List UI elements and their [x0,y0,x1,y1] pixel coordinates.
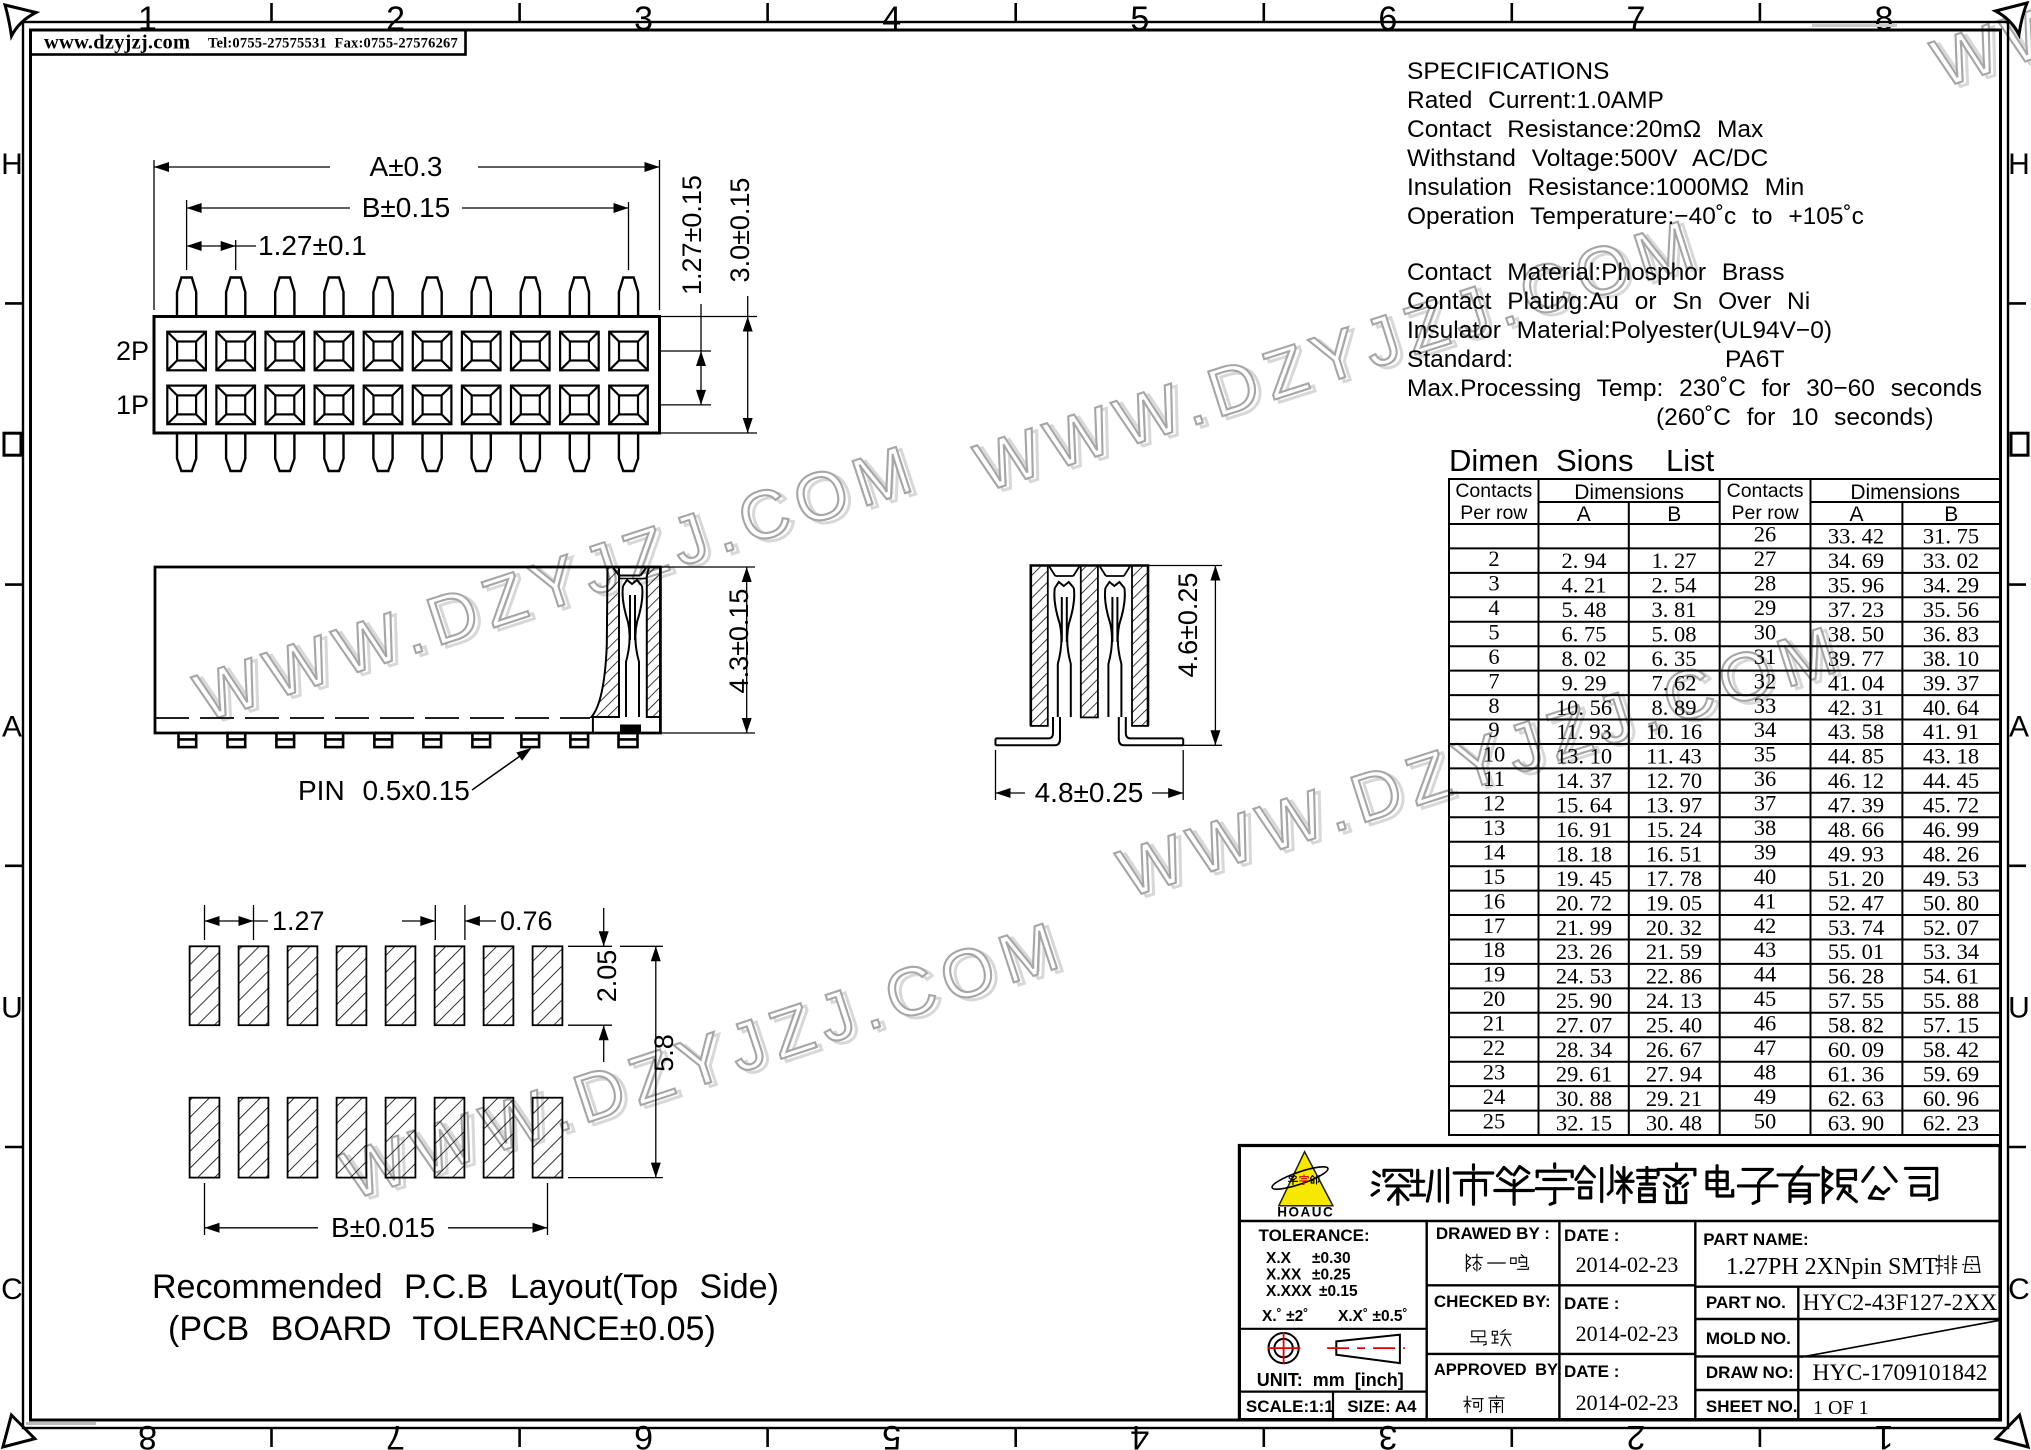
svg-text:10. 16: 10. 16 [1646,719,1702,744]
svg-text:1 OF 1: 1 OF 1 [1813,1397,1869,1419]
svg-text:11. 93: 11. 93 [1556,719,1611,744]
svg-text:Rated Current:1.0AMP: Rated Current:1.0AMP [1407,87,1664,114]
svg-text:5. 48: 5. 48 [1562,597,1607,622]
svg-text:5: 5 [1130,0,1149,38]
svg-text:17. 78: 17. 78 [1646,866,1702,891]
svg-text:35: 35 [1754,742,1777,767]
svg-text:7. 62: 7. 62 [1652,670,1697,695]
svg-text:DATE :: DATE : [1564,1294,1619,1313]
svg-text:MOLD NO.: MOLD NO. [1706,1329,1791,1348]
svg-text:24: 24 [1483,1084,1506,1109]
svg-text:37: 37 [1754,791,1777,816]
svg-text:13: 13 [1483,815,1506,840]
svg-text:1P: 1P [116,390,149,420]
svg-text:21. 99: 21. 99 [1556,915,1612,940]
svg-text:12. 70: 12. 70 [1646,768,1702,793]
svg-text:11. 43: 11. 43 [1646,744,1701,769]
svg-text:44: 44 [1754,962,1777,987]
svg-text:Recommended P.C.B Layout(Top S: Recommended P.C.B Layout(Top Side) [152,1268,779,1306]
svg-text:CHECKED BY:: CHECKED BY: [1434,1292,1551,1311]
svg-text:1.27: 1.27 [272,906,325,936]
svg-text:24. 53: 24. 53 [1556,964,1612,989]
svg-text:4: 4 [1130,1418,1149,1450]
svg-text:30. 88: 30. 88 [1556,1086,1612,1111]
svg-text:39. 77: 39. 77 [1828,646,1884,671]
svg-text:38. 10: 38. 10 [1923,646,1979,671]
svg-text:33. 42: 33. 42 [1828,524,1884,549]
svg-text:1: 1 [1875,1418,1894,1450]
svg-text:SHEET NO.: SHEET NO. [1706,1397,1798,1416]
svg-text:C: C [1,1273,23,1306]
svg-text:43: 43 [1754,937,1777,962]
svg-text:11: 11 [1483,766,1505,791]
svg-text:(260˚C for 10 seconds): (260˚C for 10 seconds) [1656,404,1934,431]
svg-text:27. 94: 27. 94 [1646,1061,1702,1086]
svg-text:Insulation Resistance:1000MΩ M: Insulation Resistance:1000MΩ Min [1407,174,1804,201]
svg-text:21: 21 [1483,1011,1506,1036]
svg-text:25. 90: 25. 90 [1556,988,1612,1013]
svg-text:16. 91: 16. 91 [1556,817,1612,842]
svg-text:19. 45: 19. 45 [1556,866,1612,891]
svg-text:26: 26 [1754,522,1777,547]
svg-text:B±0.015: B±0.015 [331,1212,435,1243]
svg-text:25: 25 [1483,1108,1506,1133]
svg-text:DRAW NO:: DRAW NO: [1706,1363,1794,1382]
svg-text:39: 39 [1754,839,1777,864]
svg-text:±0.30: ±0.30 [1312,1250,1351,1267]
svg-text:20. 72: 20. 72 [1556,890,1612,915]
svg-text:41. 04: 41. 04 [1828,670,1884,695]
svg-text:38: 38 [1754,815,1777,840]
svg-text:15: 15 [1483,864,1506,889]
svg-text:X.X: X.X [1266,1250,1292,1267]
svg-text:Max.Processing Temp: 230˚C for: Max.Processing Temp: 230˚C for 30−60 sec… [1407,375,1982,402]
svg-text:57. 55: 57. 55 [1828,988,1884,1013]
svg-text:31. 75: 31. 75 [1923,524,1979,549]
svg-text:5. 08: 5. 08 [1652,622,1697,647]
svg-text:X.X˚ ±0.5˚: X.X˚ ±0.5˚ [1338,1308,1408,1325]
svg-text:14: 14 [1483,839,1506,864]
svg-text:A±0.3: A±0.3 [370,151,443,182]
svg-text:56. 28: 56. 28 [1828,964,1884,989]
svg-text:20: 20 [1483,986,1506,1011]
svg-text:1.27PH 2XNpin SMT: 1.27PH 2XNpin SMT [1726,1254,1938,1280]
svg-text:40. 64: 40. 64 [1923,695,1979,720]
svg-text:45: 45 [1754,986,1777,1011]
svg-text:45. 72: 45. 72 [1923,793,1979,818]
svg-text:7: 7 [1626,0,1645,38]
svg-text:41. 91: 41. 91 [1923,719,1979,744]
svg-text:SIZE: A4: SIZE: A4 [1347,1397,1417,1416]
svg-text:3. 81: 3. 81 [1652,597,1697,622]
svg-text:X.XX: X.XX [1266,1267,1302,1284]
svg-text:51. 20: 51. 20 [1828,866,1884,891]
svg-text:6. 35: 6. 35 [1652,646,1697,671]
svg-text:29. 21: 29. 21 [1646,1086,1702,1111]
svg-text:7: 7 [1488,668,1499,693]
svg-text:2. 94: 2. 94 [1562,548,1607,573]
svg-text:2: 2 [1488,546,1499,571]
svg-text:8. 02: 8. 02 [1562,646,1607,671]
svg-text:32: 32 [1754,668,1777,693]
svg-text:30. 48: 30. 48 [1646,1110,1702,1135]
svg-text:54. 61: 54. 61 [1923,964,1979,989]
svg-text:29: 29 [1754,595,1777,620]
svg-text:23: 23 [1483,1059,1506,1084]
svg-text:SCALE:1:1: SCALE:1:1 [1246,1397,1334,1416]
svg-text:48. 66: 48. 66 [1828,817,1884,842]
svg-text:16: 16 [1483,888,1506,913]
svg-text:39. 37: 39. 37 [1923,670,1979,695]
svg-text:44. 85: 44. 85 [1828,744,1884,769]
svg-text:40: 40 [1754,864,1777,889]
svg-text:17: 17 [1483,913,1506,938]
svg-text:5.8: 5.8 [649,1034,679,1072]
svg-text:37. 23: 37. 23 [1828,597,1884,622]
svg-text:Sions: Sions [1556,443,1634,478]
svg-text:2. 54: 2. 54 [1652,573,1697,598]
svg-text:15. 64: 15. 64 [1556,793,1612,818]
svg-text:H: H [1,148,23,181]
svg-text:8: 8 [138,1418,157,1450]
svg-text:49. 53: 49. 53 [1923,866,1979,891]
svg-text:HYC-1709101842: HYC-1709101842 [1813,1360,1988,1386]
svg-text:26. 67: 26. 67 [1646,1037,1702,1062]
svg-text:49. 93: 49. 93 [1828,841,1884,866]
svg-text:30: 30 [1754,620,1777,645]
svg-text:48: 48 [1754,1059,1777,1084]
svg-text:(PCB BOARD TOLERANCE±0.05): (PCB BOARD TOLERANCE±0.05) [168,1310,716,1348]
svg-text:55. 01: 55. 01 [1828,939,1884,964]
svg-text:43. 18: 43. 18 [1923,744,1979,769]
svg-text:U: U [1,992,23,1025]
svg-text:22: 22 [1483,1035,1506,1060]
svg-text:4.8±0.25: 4.8±0.25 [1035,777,1144,808]
svg-text:9: 9 [1488,717,1499,742]
svg-text:U: U [2008,992,2030,1025]
svg-text:60. 96: 60. 96 [1923,1086,1979,1111]
svg-text:A: A [1849,503,1863,526]
svg-text:49: 49 [1754,1084,1777,1109]
svg-text:15. 24: 15. 24 [1646,817,1702,842]
svg-text:10. 56: 10. 56 [1556,695,1612,720]
svg-text:36: 36 [1754,766,1777,791]
svg-text:Insulator Material:Polyester(U: Insulator Material:Polyester(UL94V−0) [1407,317,1832,344]
svg-text:H: H [2008,148,2030,181]
svg-text:46. 12: 46. 12 [1828,768,1884,793]
svg-text:A: A [2009,710,2029,743]
svg-text:47. 39: 47. 39 [1828,793,1884,818]
svg-text:55. 88: 55. 88 [1923,988,1979,1013]
svg-text:6: 6 [1378,0,1397,38]
svg-text:PIN 0.5x0.15: PIN 0.5x0.15 [298,775,470,806]
svg-text:57. 15: 57. 15 [1923,1013,1979,1038]
svg-text:33. 02: 33. 02 [1923,548,1979,573]
svg-text:SPECIFICATIONS: SPECIFICATIONS [1407,58,1609,85]
svg-text:PA6T: PA6T [1725,346,1784,373]
svg-text:58. 82: 58. 82 [1828,1013,1884,1038]
svg-text:2: 2 [1626,1418,1645,1450]
svg-text:50: 50 [1754,1108,1777,1133]
svg-text:53. 34: 53. 34 [1923,939,1979,964]
svg-text:10: 10 [1483,742,1506,767]
svg-text:A: A [1577,503,1591,526]
svg-text:47: 47 [1754,1035,1777,1060]
svg-text:±0.25: ±0.25 [1312,1267,1351,1284]
svg-text:Contacts: Contacts [1727,480,1804,502]
svg-text:52. 07: 52. 07 [1923,915,1979,940]
svg-text:5: 5 [882,1418,901,1450]
svg-text:34. 29: 34. 29 [1923,573,1979,598]
svg-text:HOAUC: HOAUC [1277,1205,1334,1220]
svg-text:12: 12 [1483,791,1506,816]
svg-text:±0.15: ±0.15 [1319,1283,1358,1300]
svg-text:4: 4 [882,0,901,38]
svg-text:42: 42 [1754,913,1777,938]
svg-text:60. 09: 60. 09 [1828,1037,1884,1062]
svg-text:Tel:0755-27575531 Fax:0755-27: Tel:0755-27575531 Fax:0755-27576267 [208,36,458,52]
svg-text:3: 3 [634,0,653,38]
svg-text:28. 34: 28. 34 [1556,1037,1612,1062]
svg-text:0.76: 0.76 [500,906,553,936]
svg-text:2014-02-23: 2014-02-23 [1576,1321,1679,1346]
svg-text:4: 4 [1488,595,1499,620]
svg-text:List: List [1666,443,1715,478]
svg-text:UNIT: mm [inch]: UNIT: mm [inch] [1257,1370,1404,1390]
svg-text:61. 36: 61. 36 [1828,1061,1884,1086]
svg-text:4.3±0.15: 4.3±0.15 [724,589,754,694]
svg-text:B±0.15: B±0.15 [362,192,451,223]
svg-text:3: 3 [1378,1418,1397,1450]
svg-text:DATE :: DATE : [1564,1362,1619,1381]
svg-text:53. 74: 53. 74 [1828,915,1884,940]
svg-text:34. 69: 34. 69 [1828,548,1884,573]
svg-text:4.6±0.25: 4.6±0.25 [1173,573,1203,678]
svg-text:APPROVED BY:: APPROVED BY: [1434,1361,1562,1379]
svg-text:7: 7 [386,1418,405,1450]
svg-text:33: 33 [1754,693,1777,718]
svg-text:31: 31 [1754,644,1777,669]
svg-text:Dimensions: Dimensions [1574,481,1684,504]
svg-text:42. 31: 42. 31 [1828,695,1884,720]
svg-text:Operation Temperature:−40˚c to: Operation Temperature:−40˚c to +105˚c [1407,203,1864,230]
svg-text:44. 45: 44. 45 [1923,768,1979,793]
svg-text:2014-02-23: 2014-02-23 [1576,1390,1679,1415]
svg-text:www.dzyjzj.com: www.dzyjzj.com [44,32,190,54]
svg-text:14. 37: 14. 37 [1556,768,1612,793]
svg-text:2: 2 [386,0,405,38]
svg-text:62. 63: 62. 63 [1828,1086,1884,1111]
svg-text:41: 41 [1754,888,1777,913]
svg-text:Dimen: Dimen [1449,443,1539,478]
svg-text:PART NO.: PART NO. [1706,1293,1786,1312]
svg-text:21. 59: 21. 59 [1646,939,1702,964]
svg-text:2P: 2P [116,336,149,366]
svg-text:A: A [2,710,22,743]
svg-text:62. 23: 62. 23 [1923,1110,1979,1135]
svg-text:18. 18: 18. 18 [1556,841,1612,866]
svg-text:PART NAME:: PART NAME: [1703,1230,1808,1249]
svg-text:32. 15: 32. 15 [1556,1110,1612,1135]
svg-text:Dimensions: Dimensions [1850,481,1960,504]
svg-text:6: 6 [1488,644,1499,669]
svg-text:3: 3 [1488,571,1499,596]
svg-text:6: 6 [634,1418,653,1450]
svg-text:63. 90: 63. 90 [1828,1110,1884,1135]
svg-text:48. 26: 48. 26 [1923,841,1979,866]
svg-text:Contact Material:Phosphor Bras: Contact Material:Phosphor Brass [1407,259,1785,286]
svg-text:25. 40: 25. 40 [1646,1013,1702,1038]
svg-text:18: 18 [1483,937,1506,962]
svg-text:35. 56: 35. 56 [1923,597,1979,622]
svg-text:Contact Plating:Au or Sn Over: Contact Plating:Au or Sn Over Ni [1407,288,1810,315]
svg-text:HYC2-43F127-2XX: HYC2-43F127-2XX [1803,1290,1998,1316]
svg-text:8: 8 [1875,0,1894,38]
svg-text:DRAWED BY :: DRAWED BY : [1436,1224,1550,1243]
svg-text:34: 34 [1754,717,1777,742]
svg-text:8. 89: 8. 89 [1652,695,1697,720]
svg-text:52. 47: 52. 47 [1828,890,1884,915]
svg-text:29. 61: 29. 61 [1556,1061,1612,1086]
svg-text:TOLERANCE:: TOLERANCE: [1259,1226,1370,1245]
svg-text:19. 05: 19. 05 [1646,890,1702,915]
svg-text:Per row: Per row [1460,502,1528,524]
svg-text:DATE :: DATE : [1564,1226,1619,1245]
svg-text:46. 99: 46. 99 [1923,817,1979,842]
svg-text:1.27±0.15: 1.27±0.15 [677,175,707,295]
svg-text:X.˚ ±2˚: X.˚ ±2˚ [1262,1308,1308,1325]
svg-text:59. 69: 59. 69 [1923,1061,1979,1086]
svg-text:Per row: Per row [1732,502,1800,524]
svg-text:6. 75: 6. 75 [1562,622,1607,647]
svg-text:23. 26: 23. 26 [1556,939,1612,964]
svg-text:9. 29: 9. 29 [1562,670,1607,695]
svg-text:43. 58: 43. 58 [1828,719,1884,744]
svg-text:36. 83: 36. 83 [1923,622,1979,647]
svg-text:13. 10: 13. 10 [1556,744,1612,769]
svg-text:1. 27: 1. 27 [1652,548,1697,573]
svg-text:24. 13: 24. 13 [1646,988,1702,1013]
svg-text:Standard:: Standard: [1407,346,1513,373]
svg-text:2014-02-23: 2014-02-23 [1576,1252,1679,1277]
svg-text:C: C [2008,1273,2030,1306]
svg-text:50. 80: 50. 80 [1923,890,1979,915]
svg-text:22. 86: 22. 86 [1646,964,1702,989]
svg-text:Contacts: Contacts [1455,480,1532,502]
svg-text:35. 96: 35. 96 [1828,573,1884,598]
svg-text:B: B [1944,503,1958,526]
svg-text:27: 27 [1754,546,1777,571]
svg-text:20. 32: 20. 32 [1646,915,1702,940]
svg-text:27. 07: 27. 07 [1556,1013,1612,1038]
svg-text:5: 5 [1488,620,1499,645]
svg-text:Withstand Voltage:500V AC/DC: Withstand Voltage:500V AC/DC [1407,145,1768,172]
svg-text:19: 19 [1483,962,1506,987]
svg-text:2.05: 2.05 [592,950,622,1003]
svg-text:13. 97: 13. 97 [1646,793,1702,818]
svg-text:3.0±0.15: 3.0±0.15 [725,178,755,283]
svg-text:4. 21: 4. 21 [1562,573,1607,598]
svg-text:1.27±0.1: 1.27±0.1 [258,230,367,261]
svg-text:28: 28 [1754,571,1777,596]
svg-text:B: B [1667,503,1681,526]
svg-text:16. 51: 16. 51 [1646,841,1702,866]
svg-text:X.XXX: X.XXX [1266,1283,1312,1300]
svg-text:46: 46 [1754,1011,1777,1036]
svg-text:58. 42: 58. 42 [1923,1037,1979,1062]
svg-text:Contact Resistance:20mΩ Max: Contact Resistance:20mΩ Max [1407,116,1763,143]
svg-text:8: 8 [1488,693,1499,718]
svg-text:38. 50: 38. 50 [1828,622,1884,647]
